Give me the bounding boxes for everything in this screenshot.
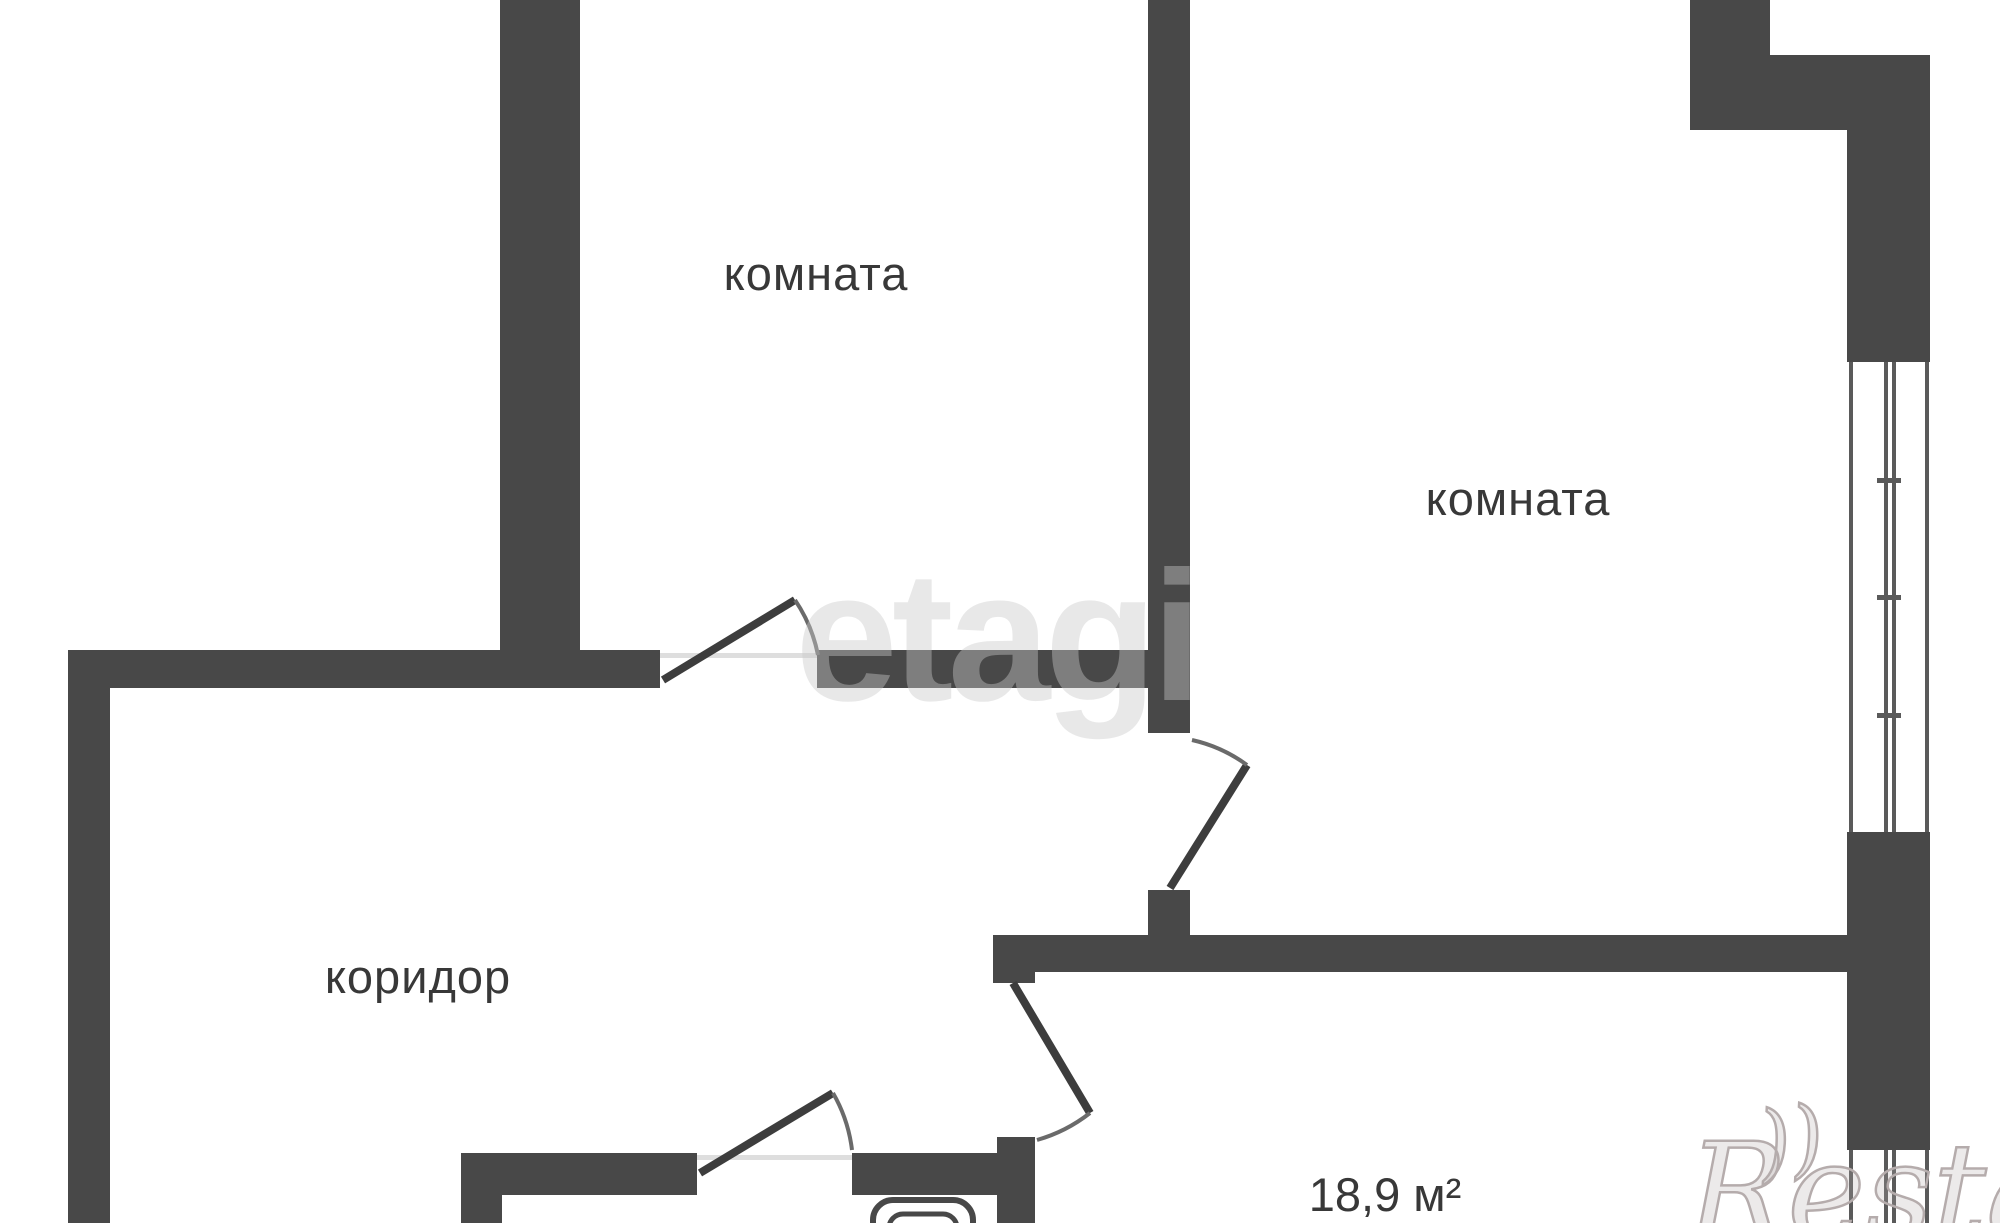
window-line-outer-right: [1925, 362, 1929, 832]
door-leaf: [700, 1093, 833, 1173]
sink-icon: [873, 1200, 973, 1223]
door-leaf: [1170, 765, 1247, 888]
door-swing-arc: [833, 1093, 852, 1150]
door-swing-arc: [1192, 740, 1247, 765]
wall-east-upper: [1847, 55, 1930, 362]
window-tick: [1877, 595, 1901, 600]
window-line-outer-left: [1849, 362, 1853, 832]
label-room-right: комната: [1363, 473, 1673, 525]
door-right-room-icon: [1170, 740, 1247, 888]
wall-east-middle: [1847, 832, 1930, 1150]
wall-left-room-west: [500, 0, 580, 688]
wall-right-room-south-nub: [993, 935, 1035, 983]
wall-middle-partition-stub: [1148, 890, 1190, 935]
door-threshold: [660, 653, 817, 658]
door-bottom-room-icon: [1013, 983, 1090, 1140]
door-leaf: [663, 600, 795, 680]
door-swing-arc: [1037, 1113, 1090, 1140]
wall-bathroom-east: [997, 1137, 1035, 1223]
label-corridor: коридор: [263, 951, 573, 1003]
floor-plan-canvas: etagi )) Restate комната комната коридор…: [0, 0, 2000, 1223]
window-tick: [1877, 713, 1901, 718]
wall-corridor-bottom-turndown: [461, 1153, 502, 1223]
watermark-restate: Restate: [1688, 1126, 2000, 1223]
window-tick: [1877, 478, 1901, 483]
door-bathroom-icon: [697, 1093, 852, 1173]
watermark-etagi: etagi: [795, 545, 1197, 730]
wall-right-room-south: [993, 935, 1852, 972]
wall-corridor-top-west: [68, 650, 660, 688]
wall-west: [68, 650, 110, 1223]
sink-inner: [889, 1214, 957, 1223]
wall-corridor-bottom-east: [852, 1153, 997, 1195]
label-room-top-left: комната: [661, 248, 971, 300]
label-bottom-room-area: 18,9 м²: [1275, 1169, 1495, 1221]
window-east-upper-icon: [1849, 362, 1929, 832]
door-leaf: [1013, 983, 1090, 1113]
